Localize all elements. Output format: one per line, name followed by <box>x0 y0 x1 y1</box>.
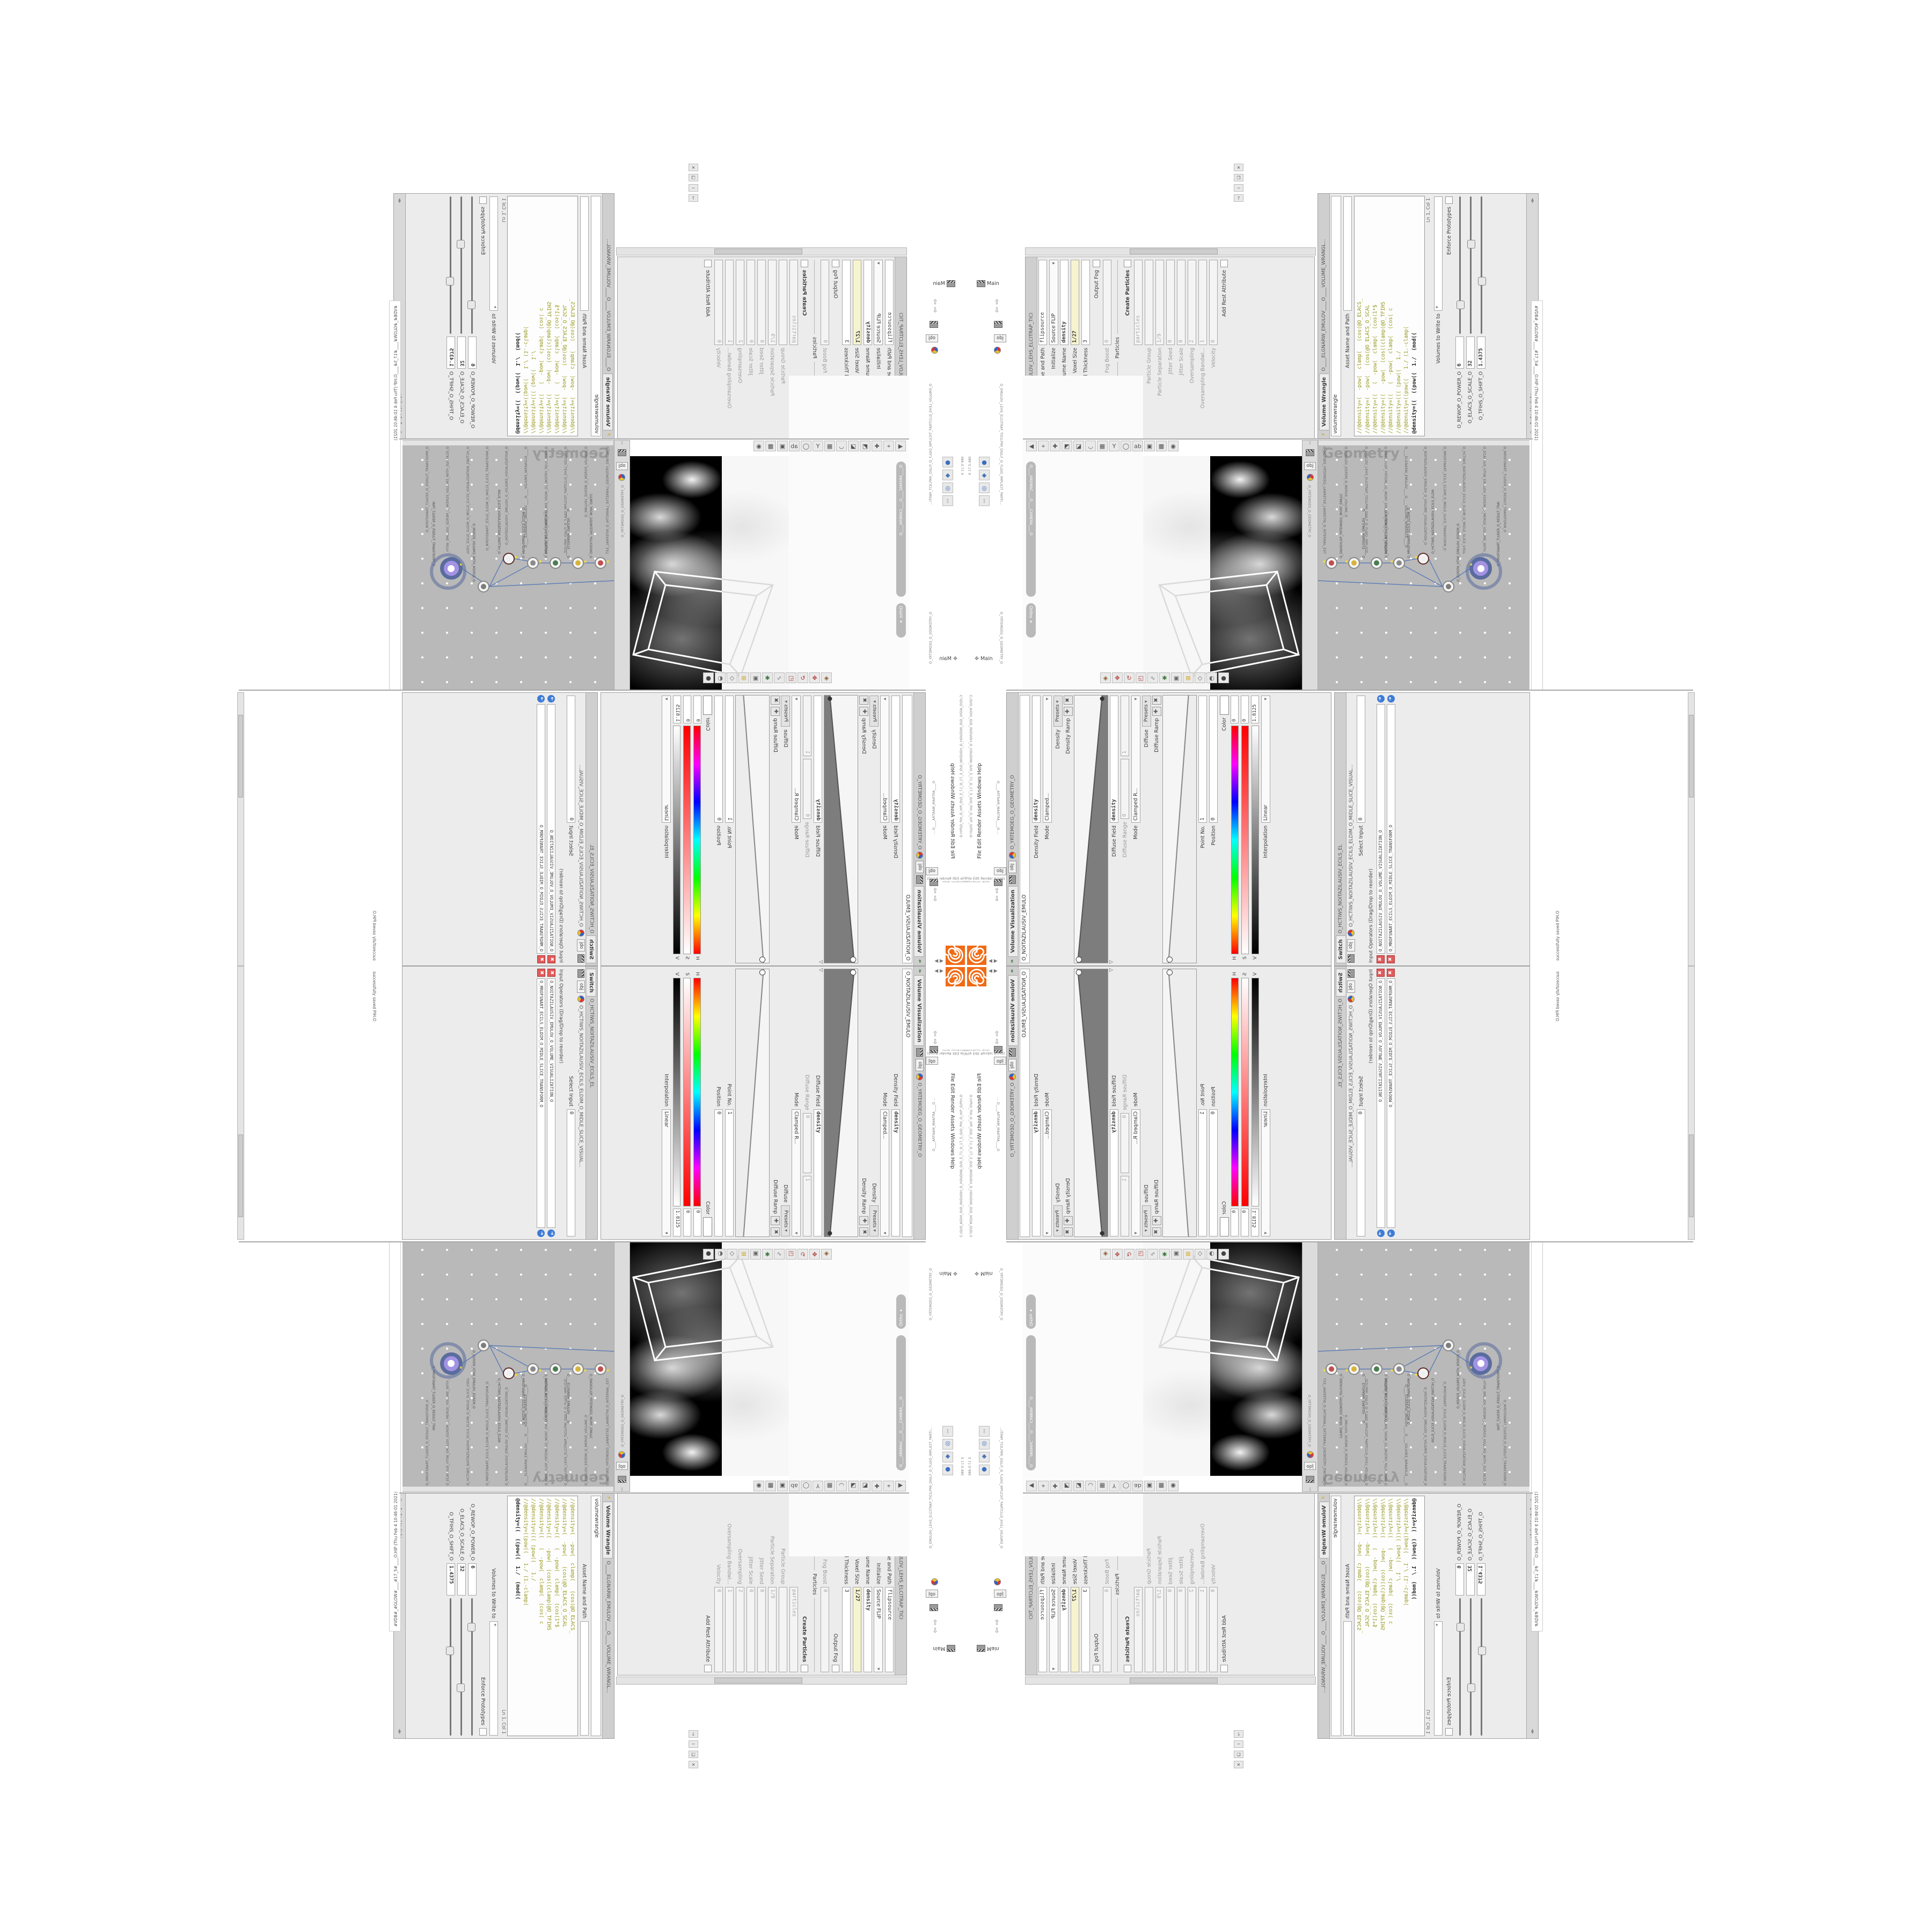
translate-icon[interactable]: ✥ <box>809 672 820 683</box>
param-value[interactable]: density <box>1032 1109 1041 1236</box>
slider-value[interactable]: 1.4375 <box>447 336 455 369</box>
slider-value[interactable]: 1.4375 <box>1477 336 1485 369</box>
remove-input-icon[interactable]: ✖ <box>1377 969 1385 977</box>
mantra-tab-vertical[interactable]: O____ARTNAM_MANTRA____O ... <box>996 781 1000 861</box>
wrangle-pane-node-tab[interactable]: O____ELGNARW_EMULOV____O____VOLUME_WRANG… <box>606 1561 611 1736</box>
network-node[interactable]: O_NOITAZILAUSIV_EMULOV_O <box>550 557 561 569</box>
param-value[interactable]: 0 <box>1166 260 1175 345</box>
pin-icon[interactable]: ⟟ <box>1302 1486 1318 1491</box>
node-flag-dot[interactable] <box>1415 1373 1417 1376</box>
obj-context-tab[interactable]: obj <box>994 1590 1006 1598</box>
pose-icon[interactable]: ✚ <box>1050 1481 1060 1491</box>
abc-icon[interactable]: ab <box>789 441 800 451</box>
value-slider[interactable] <box>1252 978 1259 1206</box>
viz-node-name-field[interactable]: O_NOITAZILAUSIV_EMULO <box>902 695 912 963</box>
network-node[interactable]: O_SNOGYLOP_YRTEMOEG_MORF_EMULOV_BDV_O <box>1326 557 1337 569</box>
viz-breadcrumb-geometry[interactable]: O_YRTEMOEG_O_GEOMETRY_O <box>917 1082 923 1237</box>
param-value[interactable]: 3 <box>842 1587 851 1672</box>
target-icon[interactable]: ◉ <box>753 1481 764 1491</box>
param-value[interactable]: 0 <box>1209 260 1218 345</box>
slider-value[interactable]: 6 <box>1455 1563 1464 1596</box>
value-slider[interactable] <box>674 978 681 1206</box>
viewport-render-lit-half[interactable] <box>722 1241 789 1476</box>
remove-input-icon[interactable]: ✖ <box>1387 955 1395 963</box>
scale-icon[interactable]: ◱ <box>1136 672 1146 683</box>
presets-dropdown[interactable]: Presets <box>870 696 879 727</box>
desktop-selector[interactable]: Main <box>918 280 955 289</box>
param-dropdown[interactable]: Clamped... <box>1043 1109 1052 1236</box>
remove-input-icon[interactable]: ✖ <box>1377 955 1385 963</box>
translate-icon[interactable]: ✥ <box>809 1249 820 1260</box>
remove-input-icon[interactable]: ✖ <box>547 955 555 963</box>
param-value[interactable]: 1/9 <box>768 1587 777 1672</box>
param-dropdown[interactable]: Clamped R... <box>792 696 801 823</box>
lasso-icon[interactable]: ⌖ <box>883 441 894 451</box>
slider-track[interactable] <box>472 196 473 334</box>
pane-up-icon[interactable]: ⇧ <box>922 298 938 306</box>
network-node[interactable]: O_MROFSNART_TLUSER_O_RESULT_TRANSFORM_O <box>440 1352 463 1375</box>
wrangle-pane-node-tab[interactable]: O____ELGNARW_EMULOV____O____VOLUME_WRANG… <box>606 196 611 371</box>
pose-icon[interactable]: ✚ <box>1050 441 1060 451</box>
param-value[interactable]: 0 <box>714 696 723 823</box>
snap-icon[interactable]: ∿ <box>1147 1249 1158 1260</box>
param-value[interactable]: flipsource <box>1038 260 1047 345</box>
reorder-input-icon[interactable]: ➜ <box>1377 695 1385 702</box>
slider-handle[interactable] <box>1467 1684 1475 1692</box>
obj-context-tab[interactable]: obj <box>1008 861 1016 873</box>
hue-value[interactable]: 0 <box>693 1209 701 1236</box>
obj-context-tab[interactable]: obj <box>994 334 1006 342</box>
ramp-delete-icon[interactable]: ✖ <box>859 696 868 705</box>
hand-tool2-icon[interactable]: ◪ <box>848 1481 859 1491</box>
checkbox[interactable] <box>801 260 808 267</box>
param-value[interactable]: 0 <box>1121 1113 1129 1174</box>
hand-tool2-icon[interactable]: ◪ <box>848 441 859 451</box>
param-value[interactable]: 1/27 <box>853 1587 861 1672</box>
pane-down-icon[interactable]: ⇩ <box>994 1029 1006 1037</box>
view-tool-icon[interactable]: ● <box>979 1465 990 1475</box>
breadcrumb-geometry[interactable]: O_YRTEMOEG_O_GEOMETRY_O <box>929 1245 933 1320</box>
param-value[interactable]: 0 <box>1357 1109 1365 1236</box>
persp-icon[interactable]: ◇ <box>727 672 737 683</box>
minimize-icon[interactable]: ─ <box>689 1740 698 1748</box>
viz-breadcrumb-geometry[interactable]: O_YRTEMOEG_O_GEOMETRY_O <box>1010 1082 1015 1237</box>
target-display-icon[interactable]: ◎ <box>942 482 953 493</box>
param-value[interactable]: particles <box>789 260 798 345</box>
breadcrumb-flip-long[interactable]: O_EMULOV_LEHS_ELCITRAP_TICILPMI_DIULF_O_… <box>999 384 1003 609</box>
param-value[interactable]: particles <box>1134 260 1143 345</box>
pane-scrollbar-vertical[interactable] <box>1688 692 1695 966</box>
viz-pane-title-tab[interactable]: Volume Visualization <box>915 975 925 1046</box>
branch-icon[interactable]: Y <box>1109 1481 1119 1491</box>
snap-icon[interactable]: ∿ <box>1147 672 1158 683</box>
ramp-add-icon[interactable]: ✚ <box>1064 707 1073 716</box>
vex-snippet-editor[interactable]: //@density=( -pow( clamp( (cos(@O_ELACS_… <box>507 196 578 436</box>
network-node[interactable]: O_NOITAZILAUSIV_EMULOV_O <box>550 1363 561 1375</box>
image-icon[interactable]: ▣ <box>777 441 788 451</box>
param-value[interactable]: 0 <box>821 1587 829 1672</box>
network-node[interactable]: O_MROFSNART_TLUSER_O_RESULT_TRANSFORM_O <box>1469 1352 1492 1375</box>
node-flag-dot[interactable] <box>539 1369 541 1372</box>
select-icon[interactable]: ◈ <box>821 672 832 683</box>
light-icon[interactable]: ◐ <box>1206 672 1217 683</box>
viz-node-name-field[interactable]: O_NOITAZILAUSIV_EMULO <box>1020 969 1030 1237</box>
node-flag-dot[interactable] <box>1323 1369 1326 1372</box>
param-value[interactable]: * <box>489 196 498 311</box>
pane-scrollbar[interactable] <box>1025 1677 1316 1685</box>
mantra-tab-vertical[interactable]: O____ARTNAM_MANTRA____O ... <box>996 1071 1000 1151</box>
slider-value[interactable]: 6 <box>468 1563 477 1596</box>
ramp-marker-icon[interactable]: ▽ <box>1109 968 1114 972</box>
cluster-icon[interactable]: ▦ <box>824 1481 835 1491</box>
obj-context-tab[interactable]: obj <box>616 462 628 470</box>
obj-context-tab[interactable]: obj <box>926 867 938 875</box>
node-flag-dot[interactable] <box>515 556 517 559</box>
param-value[interactable]: 2 <box>1188 260 1196 345</box>
grid-icon[interactable]: ▩ <box>1156 441 1167 451</box>
viewport-render-dark-half[interactable] <box>1210 1241 1309 1476</box>
grid-toggle-icon[interactable]: ⊞ <box>1183 672 1194 683</box>
network-node[interactable]: O_MROFSNART_TLUSER_O_RESULT_TRANSFORM_O <box>440 557 463 580</box>
viewport-render-dark-half[interactable] <box>1210 456 1309 691</box>
wrangle-pane-title-tab[interactable]: Volume Wrangle <box>1319 374 1329 430</box>
network-node[interactable]: O_SNOGYLOP_YRTEMOEG_MORF_EMULOV_BDV_O <box>595 557 606 569</box>
restore-icon[interactable]: ❐ <box>689 1751 698 1758</box>
main-menubar-vertical[interactable]: File Edit Render Assets Windows Help <box>977 665 983 859</box>
ramp-marker-icon[interactable]: ▽ <box>1109 960 1114 964</box>
pane-up-icon[interactable]: ⇧ <box>926 1037 938 1045</box>
density-ramp-widget[interactable]: ▽ <box>824 695 858 963</box>
param-value[interactable]: 0 <box>1103 1587 1111 1672</box>
axis-icon[interactable]: ✱ <box>1159 1249 1170 1260</box>
pane-resize-icon[interactable]: ◂▸ <box>397 1729 402 1734</box>
color-swatch[interactable] <box>1220 696 1229 715</box>
reorder-input-icon[interactable]: ➜ <box>548 1230 555 1237</box>
slider-value[interactable]: 6 <box>1455 336 1464 369</box>
slider-value[interactable]: 32 <box>1466 336 1475 369</box>
ring-icon[interactable]: ◯ <box>801 1481 811 1491</box>
axis-icon[interactable]: ✱ <box>762 672 773 683</box>
checkbox[interactable] <box>479 1728 487 1736</box>
pane-up-icon[interactable]: ⇧ <box>922 1626 938 1634</box>
main-menubar-vertical[interactable]: File Edit Render Assets Windows Help <box>977 1073 983 1267</box>
scale-icon[interactable]: ◱ <box>786 672 796 683</box>
wrangle-pane-title-tab[interactable]: Volume Wrangle <box>604 374 613 430</box>
curve-tool-icon[interactable]: ◡ <box>836 441 847 451</box>
switch-pane-title-tab[interactable]: Switch <box>1336 969 1345 997</box>
node-flag-dot[interactable] <box>1391 1369 1393 1372</box>
pane-scrollbar[interactable] <box>616 247 907 255</box>
switch-pane-node-tab[interactable]: O_HCTIWS_NOITAZILAUSIV_ECILS_EL <box>589 695 595 933</box>
scale-icon[interactable]: ◱ <box>1136 1249 1146 1260</box>
ramp-delete-icon[interactable]: ✖ <box>1064 1227 1073 1236</box>
param-dropdown[interactable]: Source FLIP <box>874 260 883 345</box>
ramp-delete-icon[interactable]: ✖ <box>771 1227 780 1236</box>
minimize-icon[interactable]: ─ <box>689 184 698 192</box>
desktop-selector-2[interactable]: ✥ Main <box>975 1268 1014 1276</box>
lasso-icon[interactable]: ⌖ <box>1038 1481 1049 1491</box>
input-operator-name[interactable]: O_NOITAZILAUSIV_EMULOV_O_VOLUME_VISUALIZ… <box>547 704 556 954</box>
pane-splitter-h[interactable] <box>399 1492 909 1494</box>
curve-tool-icon[interactable]: ◡ <box>1085 441 1096 451</box>
hue-slider[interactable] <box>1231 978 1239 1206</box>
presets-dropdown[interactable]: Presets <box>781 696 791 727</box>
main-menubar-vertical[interactable]: File Edit Render Assets Windows Help <box>949 665 955 859</box>
hand-tool-icon[interactable]: ◩ <box>1062 1481 1072 1491</box>
desktop-selector[interactable]: Main <box>977 1643 1014 1652</box>
hue-value[interactable]: 0 <box>693 696 701 723</box>
input-operator-name[interactable]: O_MROFSNART_ECILS_ELDIM_O_MIDLE_SLICE_TR… <box>1387 704 1395 954</box>
wrangle-pane-node-tab[interactable]: O____ELGNARW_EMULOV____O____VOLUME_WRANG… <box>1321 196 1327 371</box>
slider-value[interactable]: 32 <box>457 336 466 369</box>
network-editor[interactable]: Geometry O_HCTIWS_YRTEMOEG_LANRETXE_LANR… <box>402 1241 614 1492</box>
hand-tool2-icon[interactable]: ◪ <box>1073 1481 1084 1491</box>
pin-icon[interactable]: ⟟ <box>614 441 630 446</box>
desktop-selector-2[interactable]: ✥ Main <box>975 656 1014 664</box>
network-node[interactable]: O_HCTIWS_NOITAZILAUSIV_ECILS_ELDIM_O <box>1417 553 1429 565</box>
param-value[interactable]: density <box>814 696 822 823</box>
slider-track[interactable] <box>461 196 463 334</box>
target-display-icon[interactable]: ◎ <box>979 1439 990 1450</box>
playbar-arrows[interactable]: ◀ ▶ <box>989 968 998 974</box>
wrangle-asset-field[interactable] <box>580 196 589 311</box>
network-node[interactable]: O____ELGNARW_EMULOV____O <box>1348 557 1360 569</box>
reorder-input-icon[interactable]: ➜ <box>1387 1230 1395 1237</box>
slider-handle[interactable] <box>457 240 465 248</box>
checkbox[interactable] <box>832 1665 839 1672</box>
pane-resize-icon[interactable]: ◂▸ <box>397 198 402 203</box>
presets-dropdown[interactable]: Presets <box>1053 696 1063 727</box>
sat-value[interactable]: 0 <box>683 1209 691 1236</box>
param-value[interactable]: 0 <box>1209 1109 1218 1236</box>
param-value[interactable]: 0 <box>1357 696 1365 823</box>
checkbox[interactable] <box>1093 260 1100 267</box>
param-dropdown[interactable]: Linear <box>662 696 671 823</box>
viz-breadcrumb-geometry[interactable]: O_YRTEMOEG_O_GEOMETRY_O <box>1010 695 1015 850</box>
switch-pane-title-tab[interactable]: Switch <box>587 969 597 997</box>
network-node[interactable]: O_EGREM_HTIW_EMULOV_EGREM_O <box>478 581 489 592</box>
cluster-icon[interactable]: ▦ <box>824 441 835 451</box>
grid-icon[interactable]: ▩ <box>1156 1481 1167 1491</box>
ramp-delete-icon[interactable]: ✖ <box>1064 696 1073 705</box>
view-tool-icon[interactable]: ● <box>942 457 953 467</box>
switch-pane-node-tab[interactable]: O_HCTIWS_NOITAZILAUSIV_ECILS_EL <box>589 999 595 1237</box>
slider-track[interactable] <box>461 1598 463 1736</box>
node-flag-dot[interactable] <box>1345 560 1348 563</box>
restore-icon[interactable]: ❐ <box>689 174 698 181</box>
param-value[interactable]: 1/27 <box>1071 260 1079 345</box>
ramp-add-icon[interactable]: ✚ <box>859 1216 868 1225</box>
scene-viewport-empty[interactable] <box>789 376 909 691</box>
param-dropdown[interactable]: Linear <box>662 1109 671 1236</box>
slider-handle[interactable] <box>1467 240 1475 248</box>
pane-splitter-h2[interactable] <box>1006 1241 1693 1242</box>
param-value[interactable]: 1 <box>1198 1109 1207 1236</box>
val-value[interactable]: 1.8125 <box>673 1209 681 1236</box>
node-flag-dot[interactable] <box>584 560 587 563</box>
checkbox[interactable] <box>704 1665 712 1672</box>
pin-icon[interactable]: ⟟ <box>979 1426 990 1437</box>
param-value[interactable]: density <box>863 1587 872 1672</box>
ramp-add-icon[interactable]: ✚ <box>771 1216 780 1225</box>
ortho-pill[interactable]: Ortho ▾ <box>896 603 906 638</box>
network-node[interactable]: O_HCTIWS_NOITAZILAUSIV_ECILS_ELDIM_O <box>1417 1367 1429 1379</box>
param-value[interactable]: 0 <box>714 1587 723 1672</box>
param-value[interactable]: 2 <box>1188 1587 1196 1672</box>
switch-pane-title-tab[interactable]: Switch <box>1336 935 1345 963</box>
network-breadcrumb[interactable]: O_YRTEMOEG_O_GEOMETRY_O <box>1307 485 1311 646</box>
target-icon[interactable]: ◉ <box>1168 1481 1179 1491</box>
rotate-icon[interactable]: ↻ <box>1124 672 1135 683</box>
pose-icon[interactable]: ✚ <box>872 1481 882 1491</box>
density-ramp-widget[interactable]: ▽ <box>1074 969 1108 1237</box>
checkbox[interactable] <box>1445 196 1453 204</box>
val-value[interactable]: 1.8125 <box>1251 696 1259 723</box>
viewport-render-lit-half[interactable] <box>1143 456 1210 691</box>
node-flag-dot[interactable] <box>515 1373 517 1376</box>
param-value[interactable]: 1 <box>725 1587 734 1672</box>
param-value[interactable]: 1/27 <box>1071 1587 1079 1672</box>
presets-dropdown[interactable]: Presets <box>870 1205 879 1236</box>
camera-selector-pill[interactable]: O____AREMAC____O____CAMERA____O <box>896 462 906 597</box>
param-value[interactable]: 1 <box>803 1176 811 1236</box>
obj-context-tab[interactable]: obj <box>616 1462 628 1470</box>
pane-down-icon[interactable]: ⇩ <box>922 1618 938 1626</box>
close-icon[interactable]: ✕ <box>689 164 698 171</box>
wrangle-asset-field[interactable] <box>1343 1621 1352 1736</box>
viz-pane-title-tab[interactable]: Volume Visualization <box>915 886 925 957</box>
pane-up-icon[interactable]: ⇧ <box>926 887 938 895</box>
slider-handle[interactable] <box>468 1623 476 1631</box>
param-value[interactable]: density <box>1110 696 1118 823</box>
diffuse-ramp-widget[interactable] <box>1162 969 1197 1237</box>
help-icon[interactable]: ? <box>1234 194 1243 202</box>
restore-icon[interactable]: ❐ <box>1234 1751 1243 1758</box>
param-value[interactable]: flipsource <box>885 260 894 345</box>
mantra-tab-vertical[interactable]: O____ARTNAM_MANTRA____O ... <box>932 1071 936 1151</box>
ring-icon[interactable]: ◯ <box>801 441 811 451</box>
param-dropdown[interactable]: Clamped... <box>881 696 890 823</box>
slider-track[interactable] <box>1470 1598 1472 1736</box>
switch-breadcrumb-long[interactable]: O_HCTIWS_NOITAZILAUSIV_ECILS_ELDIM_O_MID… <box>1349 1005 1354 1236</box>
branch-icon[interactable]: Y <box>813 1481 823 1491</box>
playbar-arrows[interactable]: ◀ ▶ <box>934 958 943 964</box>
persp-icon[interactable]: ◇ <box>1195 672 1205 683</box>
lasso-icon[interactable]: ⌖ <box>883 1481 894 1491</box>
ramp-add-icon[interactable]: ✚ <box>771 707 780 716</box>
checkbox[interactable] <box>801 1665 808 1672</box>
param-value[interactable]: density <box>891 696 900 823</box>
ring-icon[interactable]: ◯ <box>1121 441 1131 451</box>
param-value[interactable]: 1 <box>803 696 811 756</box>
back-arrow-icon[interactable]: ◀ <box>1026 441 1037 451</box>
translate-icon[interactable]: ✥ <box>1112 672 1123 683</box>
wrangle-pane-node-tab[interactable]: O____ELGNARW_EMULOV____O____VOLUME_WRANG… <box>1321 1561 1327 1736</box>
param-value[interactable] <box>1145 260 1153 345</box>
obj-context-tab[interactable]: obj <box>1304 1462 1316 1470</box>
rotate-icon[interactable]: ↻ <box>1124 1249 1135 1260</box>
back-arrow-icon[interactable]: ◀ <box>895 441 906 451</box>
grid-toggle-icon[interactable]: ⊞ <box>1183 1249 1194 1260</box>
obj-context-tab[interactable]: obj <box>926 1590 938 1598</box>
curve-tool-icon[interactable]: ◡ <box>1085 1481 1096 1491</box>
param-value[interactable]: density <box>1060 1587 1069 1672</box>
wrangle-node-name-field[interactable]: volumewrangle <box>1331 196 1341 436</box>
param-value[interactable]: 3 <box>842 260 851 345</box>
network-node[interactable]: O_MROFSNART_TLUSER_O_RESULT_TRANSFORM_O <box>1469 557 1492 580</box>
pane-splitter-h[interactable] <box>1023 1492 1533 1494</box>
network-node[interactable]: O____ELGNARW_EMULOV____O <box>572 1363 584 1375</box>
input-operator-name[interactable]: O_MROFSNART_ECILS_ELDIM_O_MIDLE_SLICE_TR… <box>537 704 546 954</box>
network-editor[interactable]: Geometry O_HCTIWS_YRTEMOEG_LANRETXE_LANR… <box>402 440 614 691</box>
param-value[interactable]: 0 <box>1166 1587 1175 1672</box>
target-display-icon[interactable]: ◎ <box>979 482 990 493</box>
cluster-icon[interactable]: ▦ <box>1097 441 1108 451</box>
cluster-icon[interactable]: ▦ <box>1097 1481 1108 1491</box>
pin-icon[interactable]: ⟟ <box>1302 441 1318 446</box>
rotate-icon[interactable]: ↻ <box>797 672 808 683</box>
hand-tool-icon[interactable]: ◩ <box>860 441 870 451</box>
param-value[interactable]: 0 <box>747 260 755 345</box>
pane-up-icon[interactable]: ⇧ <box>994 1037 1006 1045</box>
network-node[interactable]: O_SNOGYLOP_YRTEMOEG_MORF_EMULOV_BDV_O <box>1326 1363 1337 1375</box>
param-value[interactable] <box>779 260 787 345</box>
sat-value[interactable]: 0 <box>1241 1209 1249 1236</box>
checkbox[interactable] <box>1445 1728 1453 1736</box>
obj-context-tab[interactable]: obj <box>1347 980 1355 993</box>
param-value[interactable] <box>1145 1587 1153 1672</box>
restore-icon[interactable]: ❐ <box>1234 174 1243 181</box>
box-display-icon[interactable]: ◆ <box>942 1452 953 1462</box>
param-value[interactable]: particles <box>789 1587 798 1672</box>
slider-handle[interactable] <box>1457 301 1465 309</box>
param-value[interactable]: 0 <box>567 696 575 823</box>
node-flag-dot[interactable] <box>1391 560 1393 563</box>
network-node[interactable]: O_NOITAZILAUSIV_EMULOV_O <box>1371 557 1382 569</box>
grid-icon[interactable]: ▩ <box>765 441 776 451</box>
translate-icon[interactable]: ✥ <box>1112 1249 1123 1260</box>
hue-slider[interactable] <box>1231 726 1239 954</box>
slider-value[interactable]: 32 <box>457 1563 466 1596</box>
obj-context-tab[interactable]: obj <box>1347 939 1355 952</box>
viz-node-name-field[interactable]: O_NOITAZILAUSIV_EMULO <box>1020 695 1030 963</box>
select-icon[interactable]: ◈ <box>1100 672 1111 683</box>
back-arrow-icon[interactable]: ◀ <box>1026 1481 1037 1491</box>
viz-breadcrumb-geometry[interactable]: O_YRTEMOEG_O_GEOMETRY_O <box>917 695 923 850</box>
render-icon[interactable]: ● <box>1218 1249 1229 1260</box>
slider-track[interactable] <box>1481 1598 1482 1736</box>
grid-toggle-icon[interactable]: ⊞ <box>738 1249 749 1260</box>
color-swatch[interactable] <box>704 696 713 715</box>
camera-selector-pill[interactable]: O____AREMAC____O____CAMERA____O <box>896 1335 906 1470</box>
param-value[interactable]: * <box>1434 196 1443 311</box>
param-value[interactable]: density <box>1110 1109 1118 1236</box>
slider-handle[interactable] <box>457 1684 465 1692</box>
param-value[interactable]: density <box>1060 260 1069 345</box>
switch-pane-title-tab[interactable]: Switch <box>587 935 597 963</box>
camera-lock-icon[interactable]: ▣ <box>750 672 761 683</box>
flip-pane-node-tab[interactable]: O_EMULOV_LEHS_ELCITRAP_TICI <box>1029 259 1034 391</box>
close-icon[interactable]: ✕ <box>1234 1761 1243 1768</box>
param-value[interactable] <box>779 1587 787 1672</box>
slider-handle[interactable] <box>1478 1646 1486 1655</box>
switch-breadcrumb-long[interactable]: O_HCTIWS_NOITAZILAUSIV_ECILS_ELDIM_O_MID… <box>579 696 584 927</box>
param-value[interactable]: flipsource <box>1038 1587 1047 1672</box>
viewport-render-lit-half[interactable] <box>722 456 789 691</box>
target-icon[interactable]: ◉ <box>1168 441 1179 451</box>
help-icon[interactable]: ? <box>689 1730 698 1738</box>
pane-scrollbar-vertical[interactable] <box>1688 966 1695 1240</box>
